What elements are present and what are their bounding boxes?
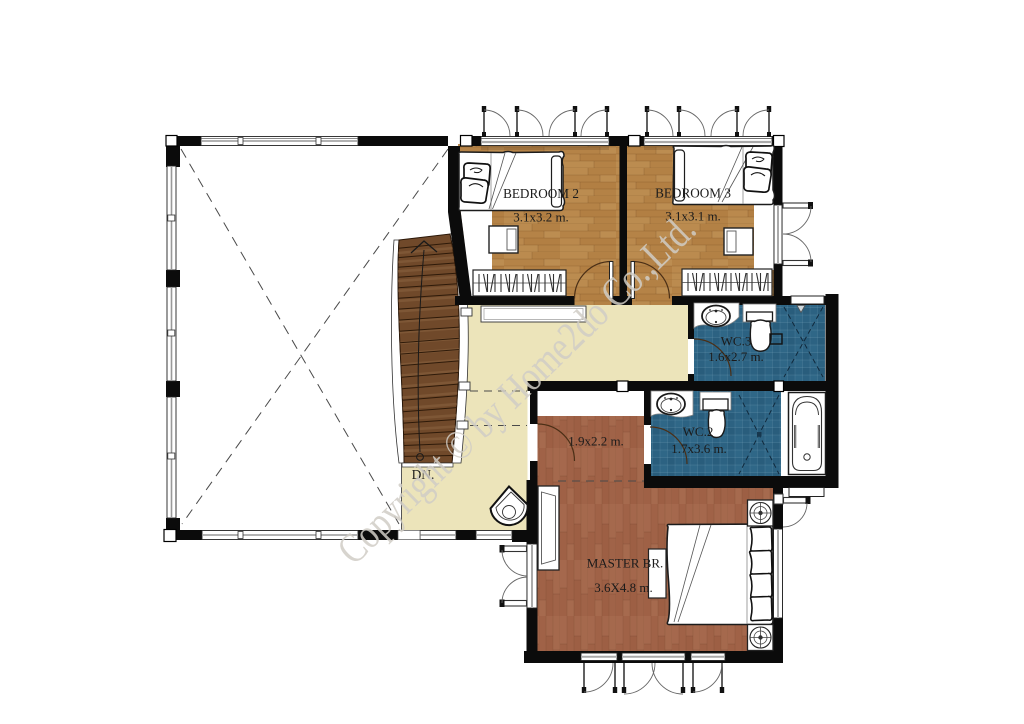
svg-text:MASTER BR.: MASTER BR. [587, 556, 664, 571]
svg-text:BEDROOM 2: BEDROOM 2 [503, 186, 579, 201]
svg-text:BEDROOM 3: BEDROOM 3 [655, 186, 731, 201]
svg-text:3.6X4.8 m.: 3.6X4.8 m. [594, 580, 653, 595]
svg-text:3.1x3.2 m.: 3.1x3.2 m. [513, 210, 569, 225]
svg-text:WC.2: WC.2 [683, 424, 714, 439]
svg-text:1.6x2.7 m.: 1.6x2.7 m. [708, 349, 764, 364]
svg-text:WC.3: WC.3 [721, 334, 752, 349]
svg-text:1.7x3.6 m.: 1.7x3.6 m. [671, 441, 727, 456]
svg-text:1.9x2.2 m.: 1.9x2.2 m. [568, 434, 624, 449]
